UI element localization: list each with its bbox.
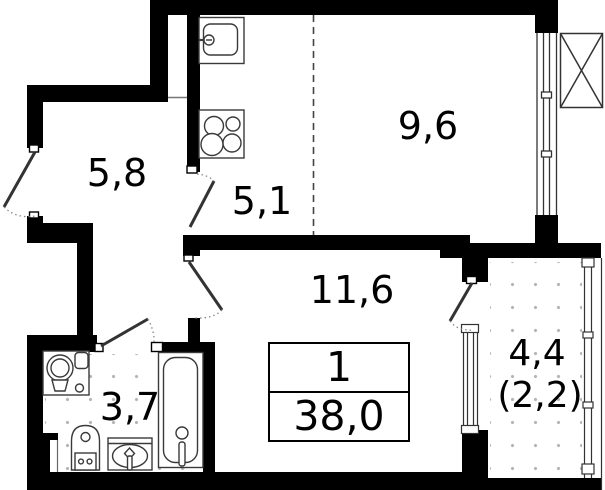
window-living-balcony (462, 325, 479, 434)
wall-segment (462, 250, 488, 282)
room-label-bedroom: 9,6 (398, 107, 458, 145)
room-label-balcony: 4,4 (508, 336, 565, 372)
room-label-balcony-reduced: (2,2) (497, 378, 582, 414)
wall-segment (27, 472, 470, 490)
room-label-bathroom: 3,7 (100, 388, 160, 426)
door-living-room (184, 255, 222, 318)
wall-segment (27, 85, 43, 148)
wall-segment (77, 223, 93, 352)
wall-segment (27, 85, 168, 102)
stove-icon (199, 110, 244, 158)
wall-segment (488, 478, 602, 490)
wall-segment (535, 0, 558, 33)
room-label-living: 11,6 (310, 271, 395, 309)
room-label-kitchen: 5,1 (232, 182, 292, 220)
ac-shaft-cross-box-icon (561, 34, 603, 108)
window-bedroom (537, 33, 557, 215)
wall-segment (535, 215, 558, 245)
wall-segment (188, 318, 200, 352)
apartment-total-area: 38,0 (270, 391, 408, 440)
wall-segment (150, 0, 558, 15)
kitchen-sink-icon (199, 18, 244, 64)
door-kitchen (187, 166, 214, 227)
wall-segment (203, 343, 215, 472)
wall-segment (43, 433, 58, 440)
wall-segment (27, 335, 43, 490)
door-balcony (450, 277, 477, 331)
apartment-number: 1 (270, 344, 408, 391)
floor-plan: 5,8 5,1 9,6 11,6 3,7 4,4 (2,2) 1 38,0 (0, 0, 605, 490)
door-entrance (4, 145, 39, 218)
apartment-info-box: 1 38,0 (268, 342, 410, 442)
window-balcony-glazing (582, 258, 602, 490)
wall-segment (187, 15, 200, 172)
room-label-hallway: 5,8 (87, 154, 147, 192)
wall-segment (187, 235, 470, 250)
